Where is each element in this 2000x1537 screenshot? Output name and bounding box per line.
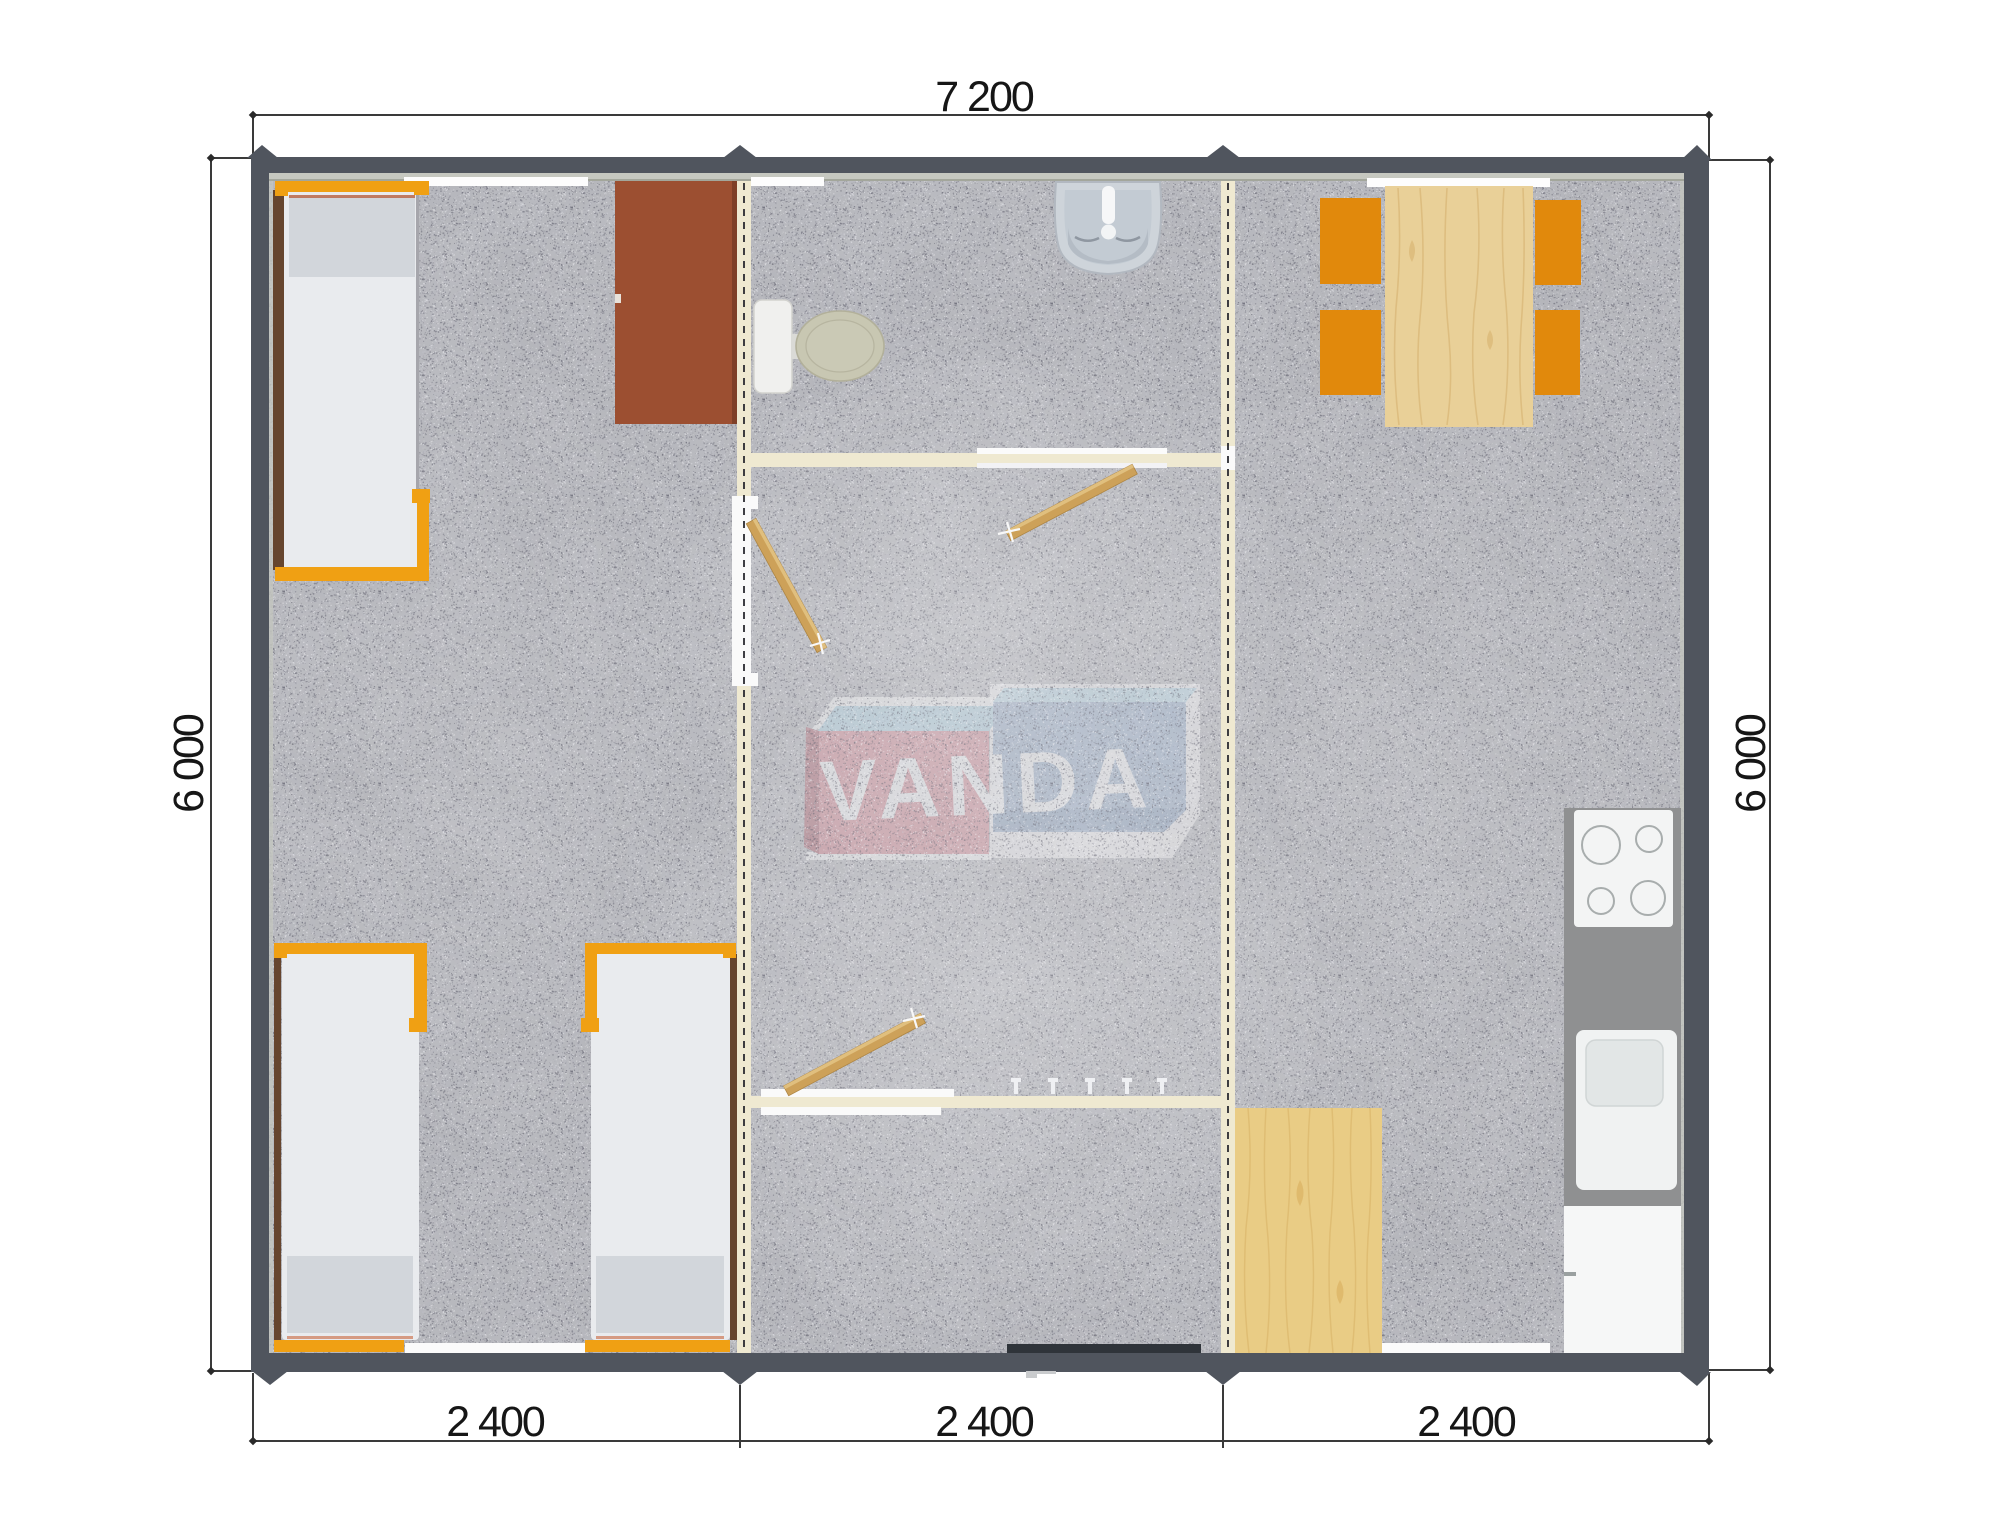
svg-text:2 400: 2 400: [935, 1398, 1034, 1446]
svg-text:7 200: 7 200: [935, 73, 1034, 121]
svg-text:6 000: 6 000: [165, 714, 213, 813]
svg-text:2 400: 2 400: [446, 1398, 545, 1446]
svg-text:6 000: 6 000: [1727, 714, 1775, 813]
svg-text:2 400: 2 400: [1417, 1398, 1516, 1446]
